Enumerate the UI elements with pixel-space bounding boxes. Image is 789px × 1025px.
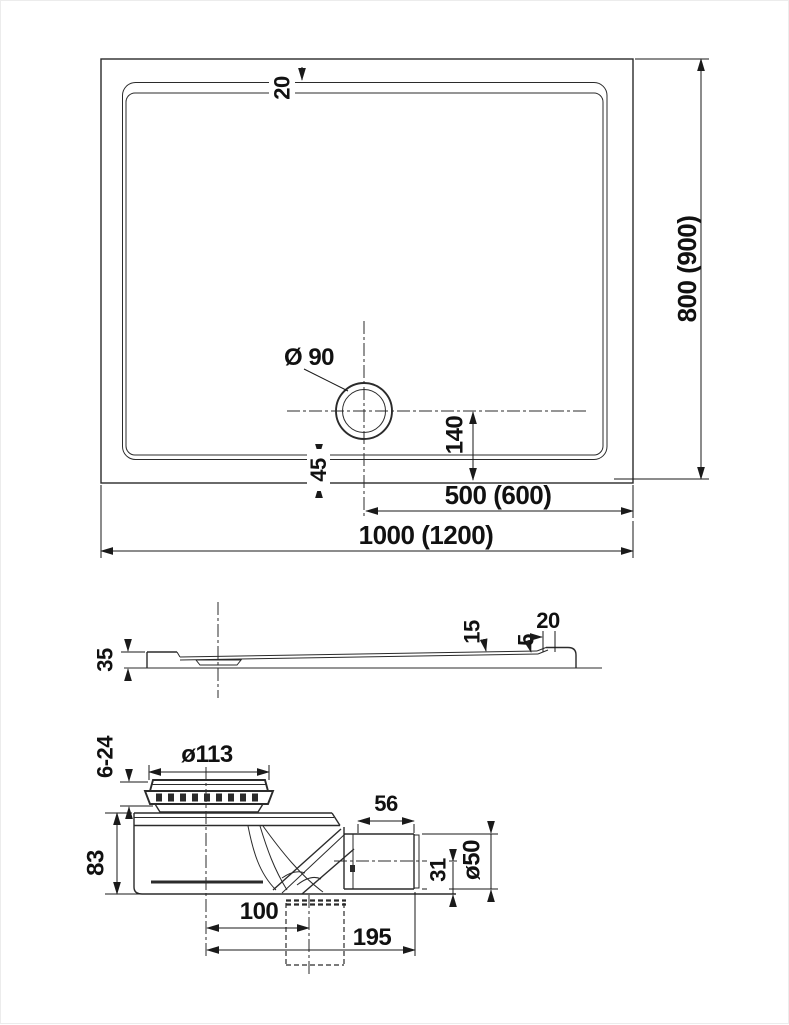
dim-trap-height: 83 [83, 813, 141, 894]
tray-profile [147, 648, 576, 669]
dim-trap-height-label: 83 [83, 850, 110, 876]
dim-cap-diameter: ø113 [149, 741, 269, 780]
dim-outlet-length-label: 56 [374, 791, 398, 816]
drain-detail: ø113 6-24 83 56 [83, 735, 499, 975]
dim-overall-width: 1000 (1200) [101, 485, 633, 558]
dim-outlet-length: 56 [358, 791, 414, 833]
dim-basin-depth: 15 [460, 620, 487, 651]
dim-profile-rim-label: 20 [536, 608, 560, 633]
trap-interior [151, 826, 354, 894]
dim-overall-width-label: 1000 (1200) [359, 520, 494, 550]
dim-hole-offset-label: 100 [240, 898, 279, 925]
dim-rim-bottom: 45 [306, 445, 331, 496]
side-view: 35 15 5 20 [93, 602, 603, 698]
dim-overall-depth-label: 800 (900) [672, 216, 702, 323]
outlet-pipe [344, 827, 419, 889]
dim-lip-label: 5 [514, 634, 539, 646]
dim-drain-diameter: Ø 90 [284, 344, 348, 391]
basin-lip-outer [123, 83, 608, 460]
basin-lip-inner [126, 93, 603, 455]
dim-cap-height-label: 6-24 [93, 735, 118, 778]
cap-slots [159, 794, 255, 802]
dim-basin-depth-label: 15 [460, 620, 485, 644]
dim-drain-from-right-label: 500 (600) [445, 480, 552, 510]
dim-overall-length-label: 195 [353, 924, 392, 951]
floor-hole-hidden [286, 901, 346, 966]
drain-cap [145, 780, 273, 812]
technical-drawing-page: 20 Ø 90 140 45 500 (600) [0, 0, 789, 1024]
dim-overall-depth: 800 (900) [614, 59, 709, 479]
dim-cap-height: 6-24 [93, 735, 154, 817]
dim-top-rim-label: 20 [270, 76, 295, 100]
dim-outlet-center-label: 31 [426, 858, 451, 882]
dim-drain-offset: 140 [442, 412, 474, 480]
dim-top-rim: 20 [269, 64, 302, 110]
dim-outlet-diameter-label: ø50 [459, 840, 486, 880]
shower-tray-drawing: 20 Ø 90 140 45 500 (600) [1, 1, 789, 1025]
dim-drain-diameter-label: Ø 90 [284, 344, 334, 371]
dim-profile-height-label: 35 [93, 648, 118, 672]
dim-outlet-center: 31 [426, 849, 454, 906]
dim-profile-height: 35 [93, 641, 146, 679]
trap-body [134, 813, 456, 894]
tray-outer-outline [101, 59, 633, 483]
dim-cap-diameter-label: ø113 [181, 741, 233, 768]
dim-rim-bottom-label: 45 [306, 458, 331, 482]
dim-hole-offset: 100 [207, 898, 309, 928]
dim-drain-offset-label: 140 [442, 416, 469, 455]
top-view: 20 Ø 90 140 45 500 (600) [101, 59, 709, 558]
dim-drain-from-right: 500 (600) [366, 480, 633, 518]
